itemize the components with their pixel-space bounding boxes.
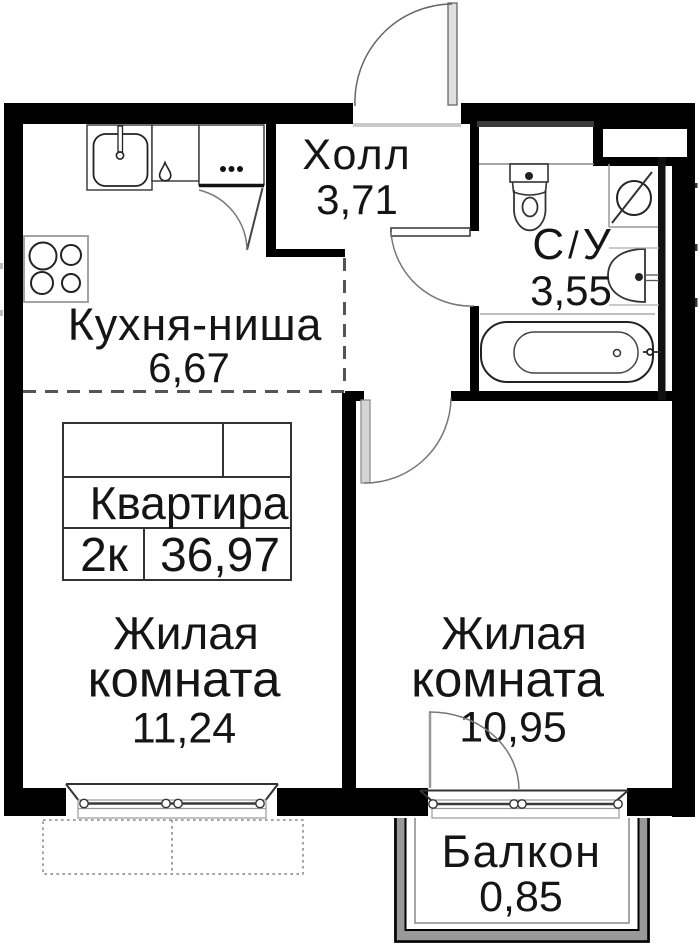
svg-text:Балкон: Балкон: [442, 826, 602, 877]
svg-text:Кухня-ниша: Кухня-ниша: [68, 299, 323, 350]
svg-text:комната: комната: [88, 651, 282, 708]
svg-text:11,24: 11,24: [132, 705, 236, 753]
svg-text:36,97: 36,97: [160, 529, 280, 582]
svg-text:2к: 2к: [80, 529, 129, 582]
svg-text:3,55: 3,55: [530, 267, 612, 314]
svg-text:3,71: 3,71: [316, 176, 398, 223]
svg-text:Холл: Холл: [302, 131, 411, 179]
svg-text:10,95: 10,95: [459, 704, 567, 752]
svg-text:6,67: 6,67: [148, 344, 230, 391]
svg-text:С/У: С/У: [532, 220, 614, 269]
svg-text:Квартира: Квартира: [90, 477, 289, 529]
svg-text:комната: комната: [411, 651, 605, 708]
svg-text:0,85: 0,85: [479, 873, 563, 921]
